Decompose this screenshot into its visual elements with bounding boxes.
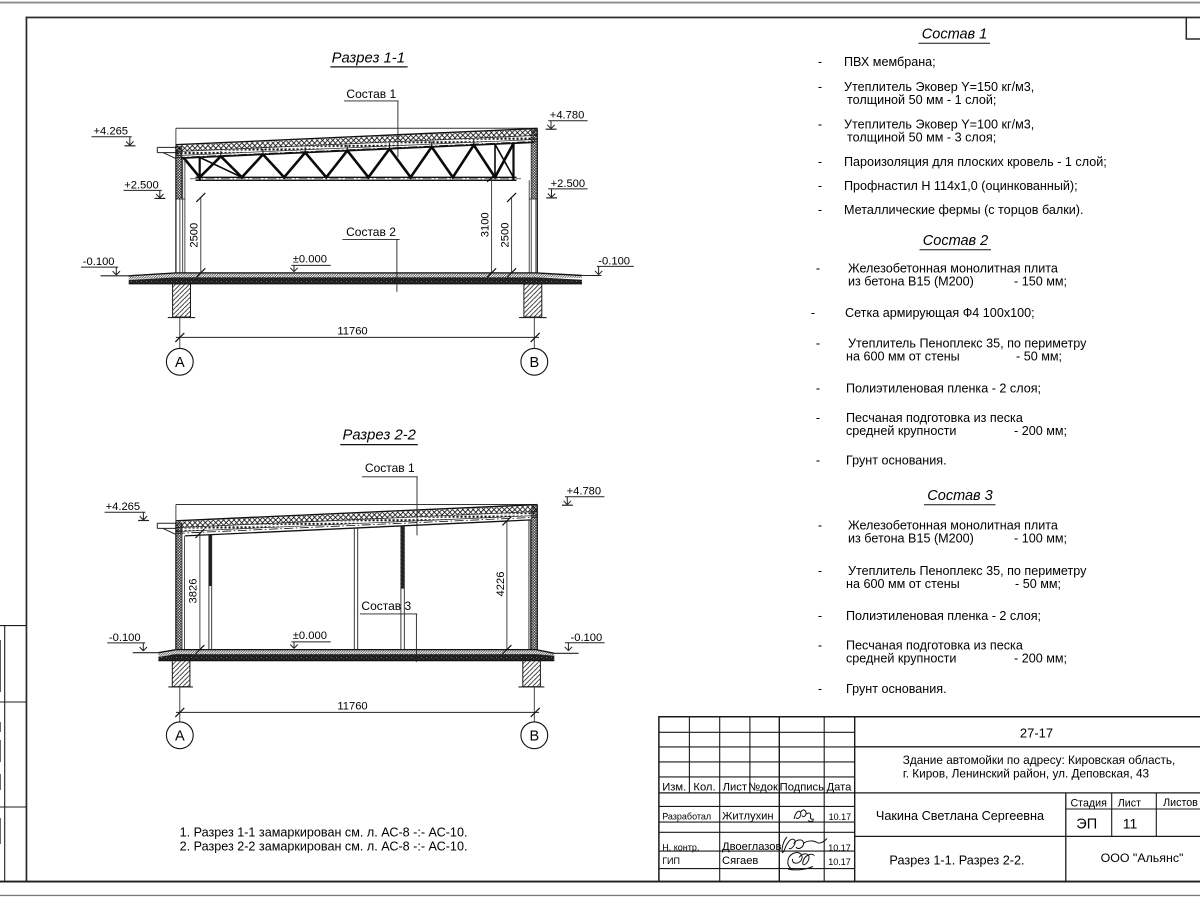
svg-text:27-17: 27-17 bbox=[1020, 726, 1053, 741]
svg-text:Утеплитель Пеноплекс 35, по пе: Утеплитель Пеноплекс 35, по периметру bbox=[848, 564, 1087, 578]
svg-text:- 100 мм;: - 100 мм; bbox=[1014, 532, 1067, 546]
svg-text:-: - bbox=[818, 179, 822, 193]
svg-text:Чакина Светлана Сергеевна: Чакина Светлана Сергеевна bbox=[876, 809, 1045, 823]
svg-text:Разрез 1-1. Разрез 2-2.: Разрез 1-1. Разрез 2-2. bbox=[889, 854, 1024, 868]
svg-text:В: В bbox=[529, 729, 539, 745]
svg-text:Состав 1: Состав 1 bbox=[365, 461, 415, 475]
svg-text:- 50 мм;: - 50 мм; bbox=[1016, 350, 1062, 364]
svg-text:-: - bbox=[818, 203, 822, 217]
svg-text:Металлические фермы (с торцов: Металлические фермы (с торцов балки). bbox=[844, 203, 1083, 217]
svg-text:Разрез 2-2: Разрез 2-2 bbox=[343, 428, 417, 444]
svg-text:Состав 1: Состав 1 bbox=[346, 87, 396, 101]
svg-text:ПВХ мембрана;: ПВХ мембрана; bbox=[844, 55, 936, 69]
svg-text:А: А bbox=[175, 729, 185, 745]
svg-text:11760: 11760 bbox=[337, 701, 367, 713]
svg-text:-0.100: -0.100 bbox=[109, 632, 141, 644]
svg-text:толщиной 50 мм - 1 слой;: толщиной 50 мм - 1 слой; bbox=[847, 93, 996, 107]
svg-text:-: - bbox=[816, 454, 820, 468]
svg-text:2500: 2500 bbox=[189, 223, 201, 248]
svg-text:Листов: Листов bbox=[1163, 797, 1198, 809]
svg-text:Состав 1: Состав 1 bbox=[922, 27, 987, 43]
svg-text:Н. контр.: Н. контр. bbox=[662, 842, 699, 852]
svg-text:Лист: Лист bbox=[1118, 798, 1141, 810]
svg-text:+4.780: +4.780 bbox=[567, 486, 602, 498]
svg-text:-: - bbox=[818, 55, 822, 69]
svg-text:-: - bbox=[818, 564, 822, 578]
svg-text:-: - bbox=[818, 519, 822, 533]
svg-text:-0.100: -0.100 bbox=[571, 632, 603, 644]
svg-text:Пароизоляция для плоских крове: Пароизоляция для плоских кровель - 1 сло… bbox=[844, 155, 1107, 169]
svg-text:- 150 мм;: - 150 мм; bbox=[1014, 275, 1067, 289]
svg-text:Стадия: Стадия bbox=[1070, 798, 1107, 810]
svg-text:-: - bbox=[818, 682, 822, 696]
svg-text:-: - bbox=[816, 411, 820, 425]
svg-text:Сягаев: Сягаев bbox=[722, 855, 758, 867]
svg-text:10.17: 10.17 bbox=[829, 812, 852, 822]
svg-text:на 600 мм от стены: на 600 мм от стены bbox=[846, 350, 960, 364]
svg-text:3100: 3100 bbox=[479, 212, 491, 237]
svg-text:2500: 2500 bbox=[500, 223, 512, 248]
svg-text:-: - bbox=[818, 155, 822, 169]
svg-text:Утеплитель Эковер Y=100 кг/м3,: Утеплитель Эковер Y=100 кг/м3, bbox=[844, 118, 1034, 132]
svg-text:г. Киров, Ленинский район, ул.: г. Киров, Ленинский район, ул. Деповская… bbox=[903, 766, 1150, 780]
svg-text:Разработал: Разработал bbox=[662, 811, 711, 821]
svg-text:средней крупности: средней крупности bbox=[846, 424, 956, 438]
svg-text:11: 11 bbox=[1123, 815, 1138, 831]
svg-text:-: - bbox=[816, 337, 820, 351]
svg-text:Профнастил Н 114х1,0 (оцинкова: Профнастил Н 114х1,0 (оцинкованный); bbox=[844, 179, 1078, 193]
svg-text:-0.100: -0.100 bbox=[83, 256, 115, 268]
svg-text:Состав 2: Состав 2 bbox=[346, 225, 396, 239]
svg-text:-: - bbox=[816, 382, 820, 396]
svg-text:- 50 мм;: - 50 мм; bbox=[1015, 577, 1061, 591]
svg-text:Двоеглазов: Двоеглазов bbox=[722, 841, 782, 853]
svg-text:Подпись: Подпись bbox=[780, 782, 824, 794]
svg-text:толщиной 50 мм - 3 слоя;: толщиной 50 мм - 3 слоя; bbox=[847, 131, 996, 145]
svg-text:из бетона В15 (М200): из бетона В15 (М200) bbox=[848, 532, 974, 546]
svg-text:1. Разрез 1-1 замаркирован см.: 1. Разрез 1-1 замаркирован см. л. АС-8 -… bbox=[180, 826, 468, 840]
svg-text:-: - bbox=[818, 80, 822, 94]
svg-text:Состав 2: Состав 2 bbox=[923, 233, 988, 249]
svg-text:+4.780: +4.780 bbox=[550, 110, 585, 122]
svg-text:Дата: Дата bbox=[827, 782, 853, 794]
svg-text:Лист: Лист bbox=[723, 782, 747, 794]
svg-text:11760: 11760 bbox=[337, 326, 367, 338]
svg-text:ЭП: ЭП bbox=[1076, 816, 1097, 832]
svg-text:Полиэтиленовая пленка - 2 слоя: Полиэтиленовая пленка - 2 слоя; bbox=[846, 382, 1041, 396]
svg-text:- 200 мм;: - 200 мм; bbox=[1014, 652, 1067, 666]
svg-text:-: - bbox=[818, 118, 822, 132]
svg-text:Здание автомойки по адресу: Ки: Здание автомойки по адресу: Кировская об… bbox=[903, 753, 1176, 767]
svg-text:на 600 мм от стены: на 600 мм от стены bbox=[846, 577, 960, 591]
svg-text:-0.100: -0.100 bbox=[598, 255, 630, 267]
svg-text:Разрез 1-1: Разрез 1-1 bbox=[332, 51, 405, 67]
svg-text:Железобетонная монолитная пли: Железобетонная монолитная плита bbox=[848, 262, 1058, 276]
svg-text:Сетка армирующая Ф4 100х100;: Сетка армирующая Ф4 100х100; bbox=[845, 306, 1035, 320]
svg-text:Грунт основания.: Грунт основания. bbox=[846, 454, 947, 468]
svg-text:-: - bbox=[818, 609, 822, 623]
svg-text:Песчаная подготовка из песка: Песчаная подготовка из песка bbox=[846, 639, 1023, 653]
svg-text:Состав 3: Состав 3 bbox=[927, 488, 992, 504]
svg-text:-: - bbox=[811, 306, 815, 320]
svg-text:-: - bbox=[818, 639, 822, 653]
svg-text:+4.265: +4.265 bbox=[94, 126, 129, 138]
svg-text:±0.000: ±0.000 bbox=[293, 630, 327, 642]
svg-text:В: В bbox=[529, 355, 539, 371]
svg-text:Песчаная подготовка из песка: Песчаная подготовка из песка bbox=[846, 411, 1023, 425]
svg-text:Грунт основания.: Грунт основания. bbox=[846, 682, 947, 696]
svg-text:Утеплитель Пеноплекс 35, по пе: Утеплитель Пеноплекс 35, по периметру bbox=[848, 337, 1087, 351]
svg-text:+2.500: +2.500 bbox=[124, 179, 159, 191]
svg-text:3826: 3826 bbox=[188, 579, 200, 604]
svg-text:№док.: №док. bbox=[748, 782, 781, 794]
svg-text:+2.500: +2.500 bbox=[551, 178, 586, 190]
svg-text:Состав 3: Состав 3 bbox=[361, 599, 411, 613]
svg-text:ГИП: ГИП bbox=[662, 856, 680, 866]
svg-text:А: А bbox=[175, 355, 185, 371]
svg-text:- 200 мм;: - 200 мм; bbox=[1014, 424, 1067, 438]
svg-text:-: - bbox=[816, 262, 820, 276]
svg-text:10.17: 10.17 bbox=[828, 843, 851, 853]
svg-text:10.17: 10.17 bbox=[828, 857, 851, 867]
svg-text:Изм.: Изм. bbox=[662, 782, 686, 794]
svg-text:средней крупности: средней крупности bbox=[846, 652, 956, 666]
svg-text:Железобетонная монолитная пли: Железобетонная монолитная плита bbox=[848, 519, 1058, 533]
svg-text:Полиэтиленовая пленка - 2 слоя: Полиэтиленовая пленка - 2 слоя; bbox=[846, 609, 1041, 623]
svg-text:±0.000: ±0.000 bbox=[293, 254, 327, 266]
svg-text:+4.265: +4.265 bbox=[106, 501, 141, 513]
svg-text:ООО "Альянс": ООО "Альянс" bbox=[1101, 851, 1184, 865]
svg-text:4226: 4226 bbox=[495, 572, 507, 597]
svg-text:Утеплитель Эковер Y=150 кг/м3,: Утеплитель Эковер Y=150 кг/м3, bbox=[844, 80, 1034, 94]
svg-text:из бетона В15 (М200): из бетона В15 (М200) bbox=[848, 275, 974, 289]
svg-text:2. Разрез 2-2 замаркирован см.: 2. Разрез 2-2 замаркирован см. л. АС-8 -… bbox=[180, 840, 468, 854]
svg-text:Житлухин: Житлухин bbox=[722, 810, 774, 822]
svg-text:Кол.: Кол. bbox=[693, 782, 715, 794]
